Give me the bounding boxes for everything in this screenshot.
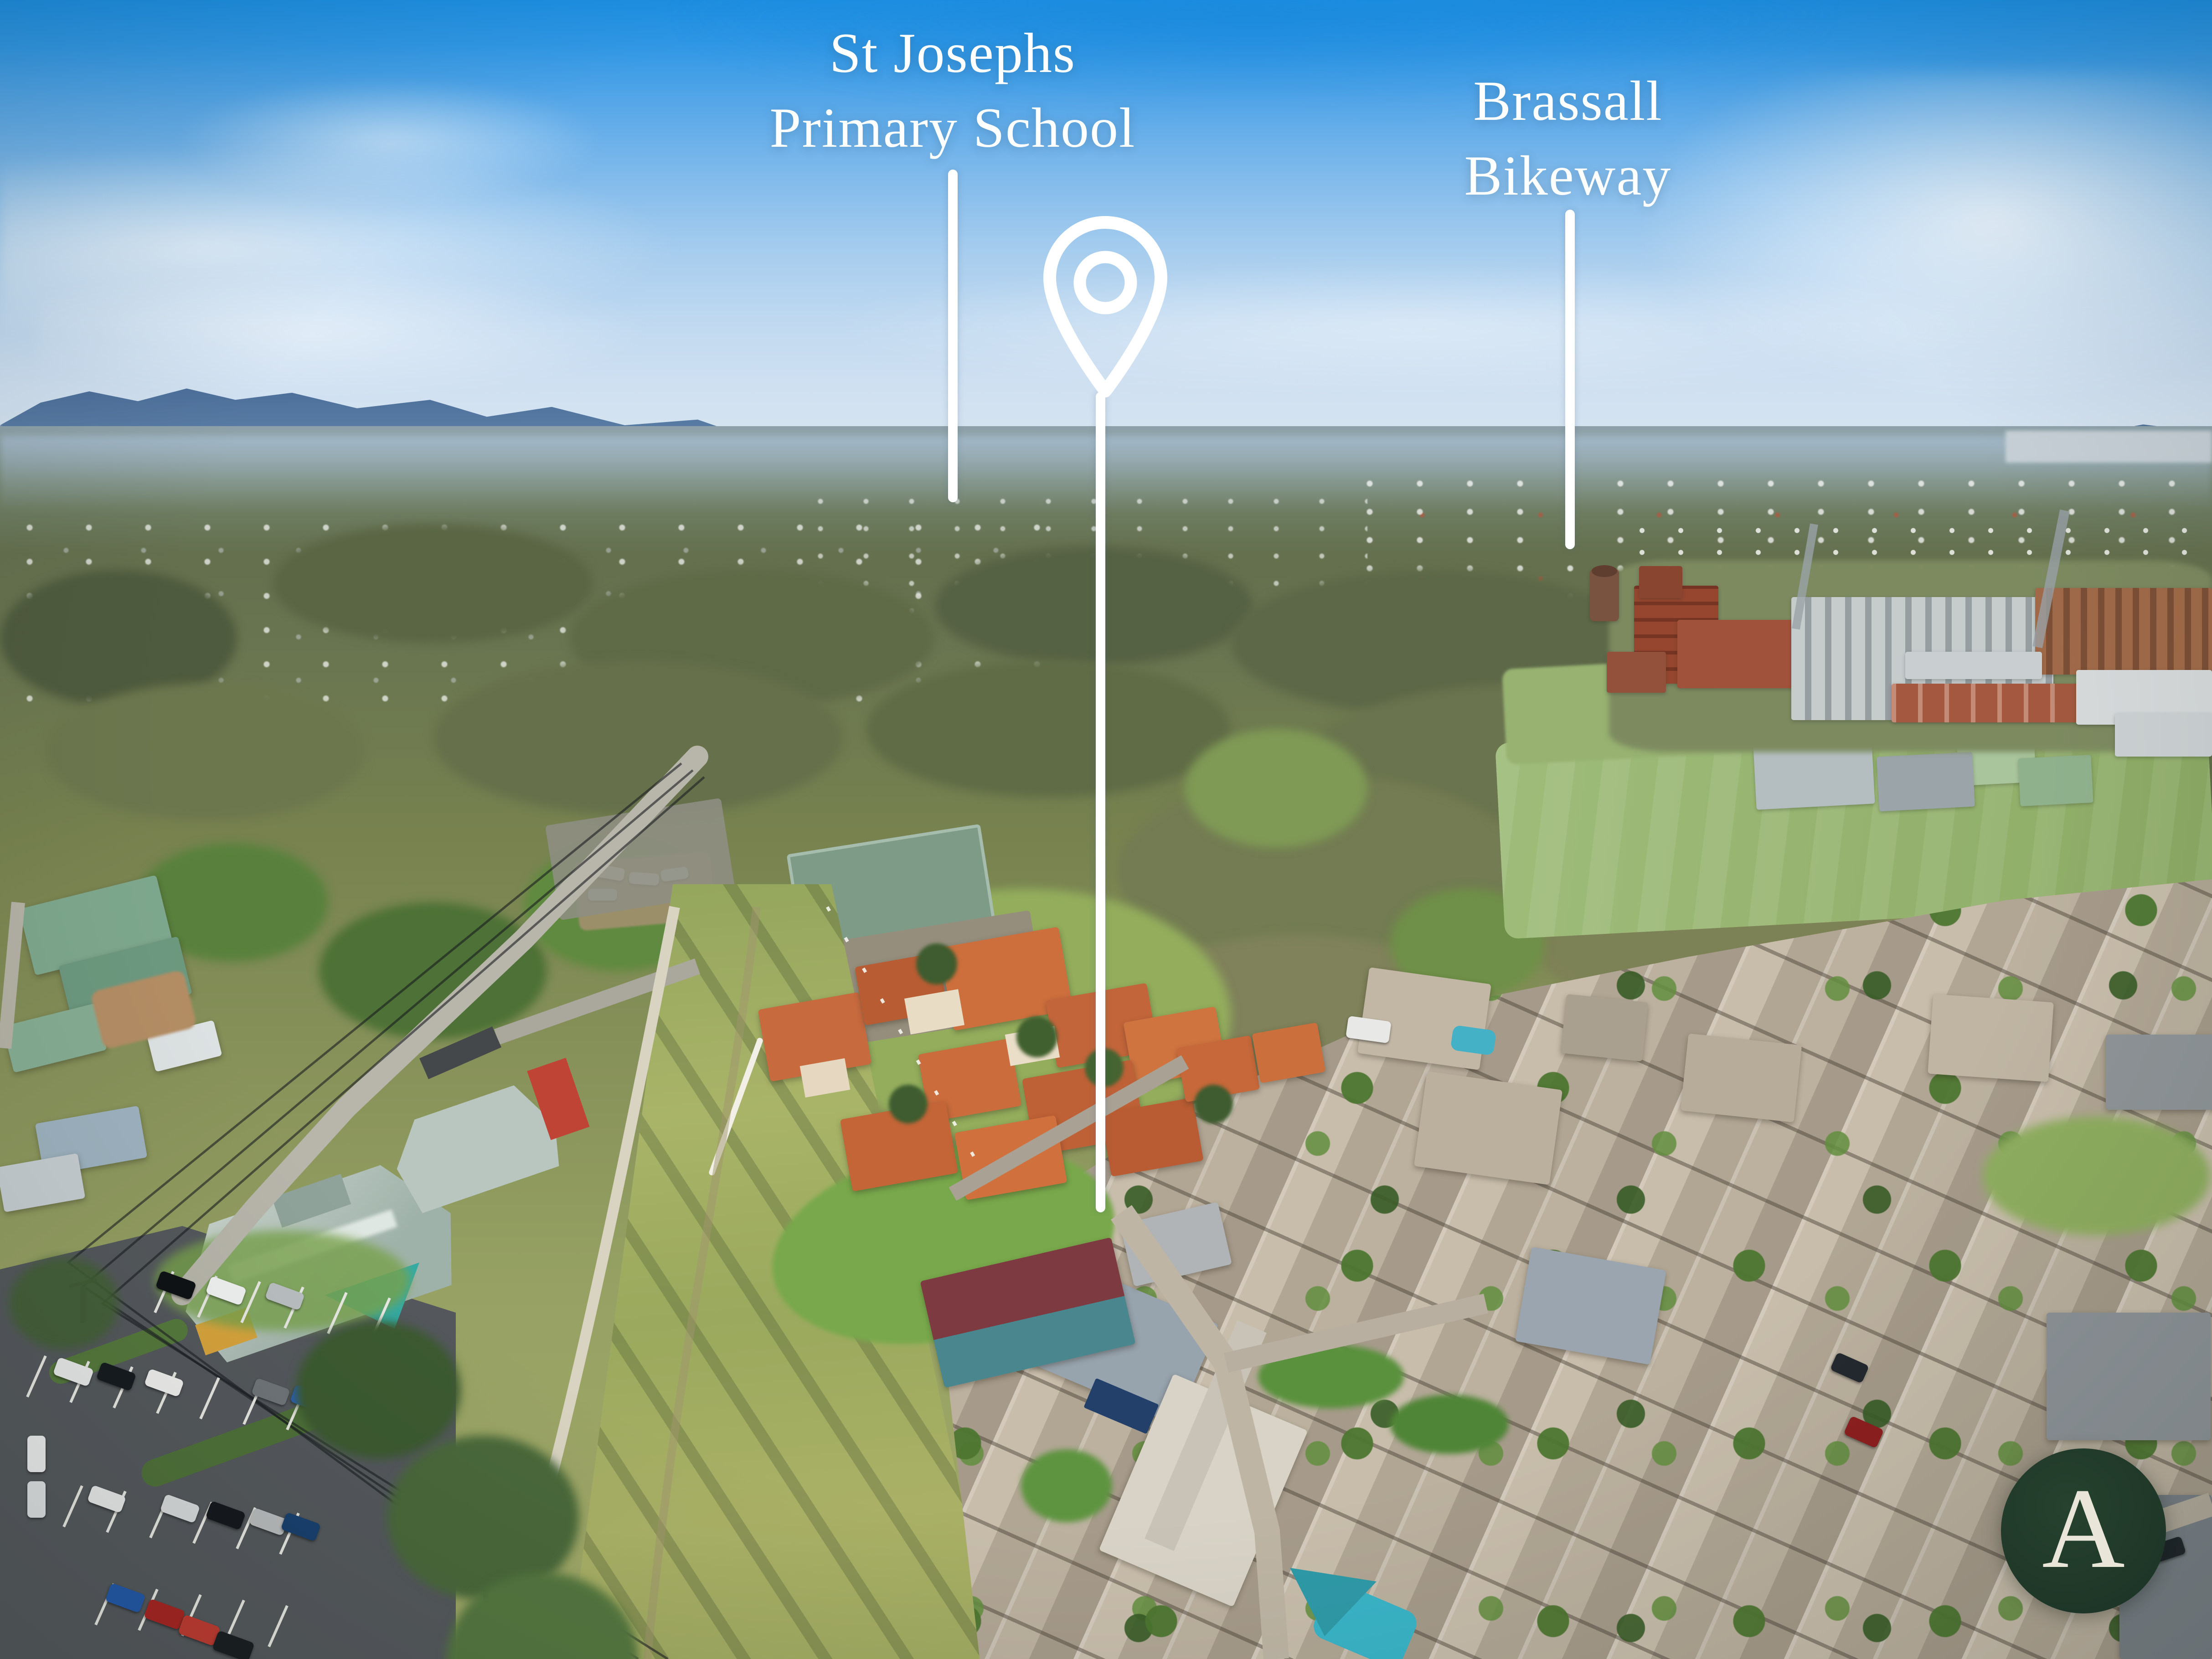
school-label-line1: St Josephs — [656, 16, 1249, 91]
location-pin-icon — [1036, 213, 1175, 397]
bikeway-leader-line — [1565, 210, 1575, 549]
school-leader-line — [948, 170, 958, 502]
school-label: St Josephs Primary School — [656, 16, 1249, 165]
aerial-photo: St Josephs Primary School Brassall Bikew… — [0, 0, 2212, 1659]
school-label-line2: Primary School — [656, 91, 1249, 165]
letter-a-monogram-icon: A — [2042, 1471, 2125, 1586]
bikeway-label-line1: Brassall — [1272, 64, 1864, 139]
bikeway-label-line2: Bikeway — [1272, 139, 1864, 213]
pin-leader-line — [1096, 392, 1105, 1212]
bikeway-label: Brassall Bikeway — [1272, 64, 1864, 213]
agency-logo: A — [2001, 1448, 2166, 1613]
